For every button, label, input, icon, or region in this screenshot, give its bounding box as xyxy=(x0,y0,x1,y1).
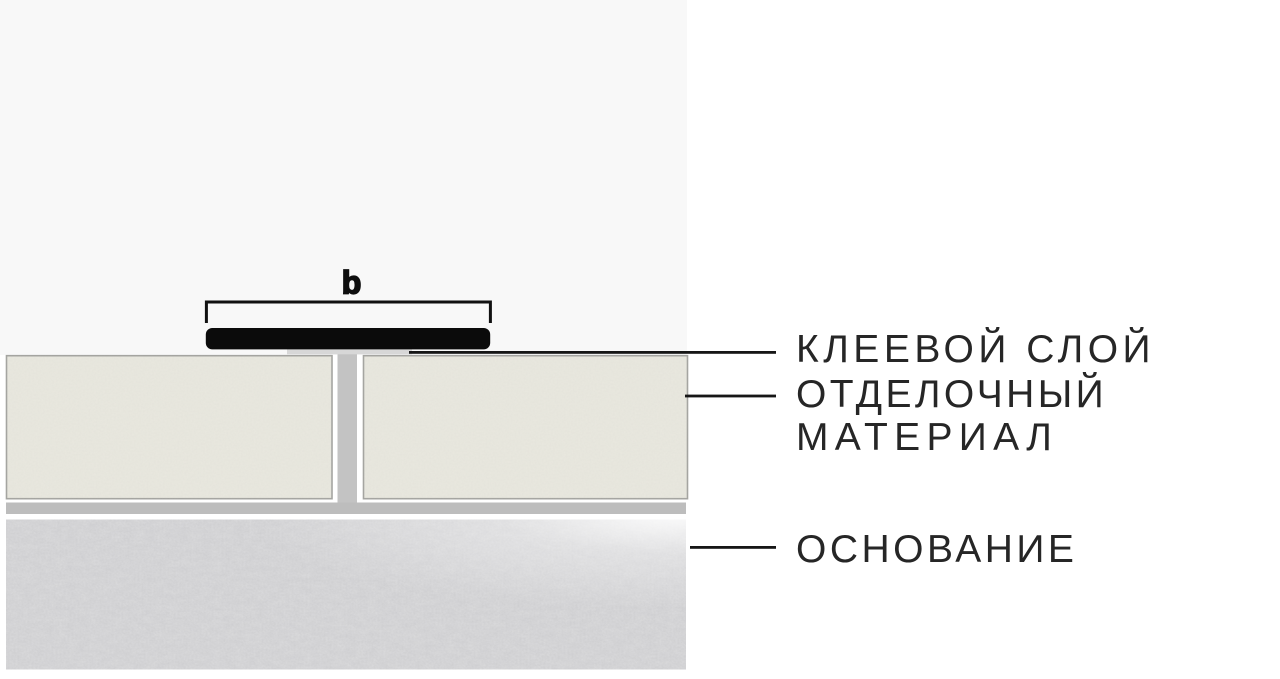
svg-text:b: b xyxy=(342,265,362,301)
